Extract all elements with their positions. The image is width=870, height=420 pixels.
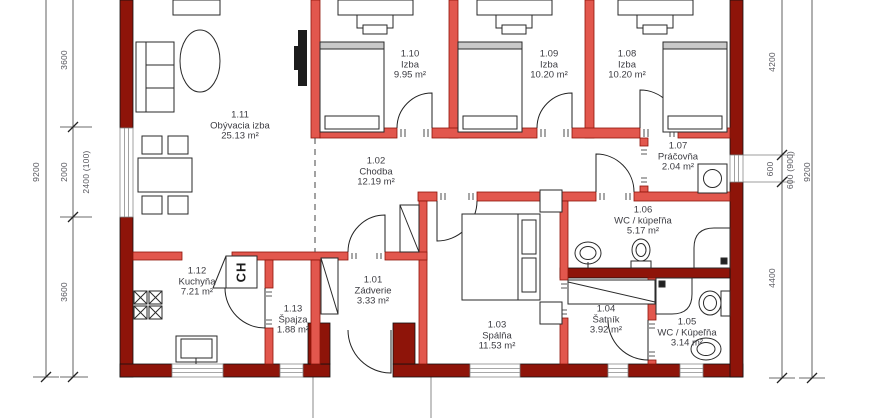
bed-room-109 (458, 42, 522, 132)
door-room-109 (537, 93, 572, 128)
room-label-1-12: 1.12Kuchyňa7.21 m² (179, 266, 216, 298)
bed-main-bedroom (462, 190, 562, 324)
room-label-1-07: 1.07Práčovňa2.04 m² (658, 141, 698, 173)
room-label-1-05: 1.05WC / Kúpeľňa3.14 m² (657, 317, 716, 349)
floor-plan: 1.11Obývacia izba25.13 m² 1.10Izba9.95 m… (0, 0, 870, 420)
fridge-label: CH (234, 262, 249, 283)
entry-closet (321, 258, 338, 314)
window-kitchen (172, 364, 223, 377)
room-label-1-13: 1.13Špajza1.88 m² (277, 304, 309, 336)
window-living-left (120, 128, 133, 217)
dim-left-mid-alt: 2400 (100) (81, 150, 91, 193)
dim-right-top: 4200 (767, 52, 777, 72)
bed-room-110 (320, 42, 384, 132)
room-label-1-06: 1.06WC / kúpeľňa5.17 m² (614, 205, 672, 237)
dim-right-bottom: 4400 (767, 268, 777, 288)
door-kitchen-pantry (225, 288, 265, 328)
door-main-entrance (348, 330, 391, 373)
room-label-1-09: 1.09Izba10.20 m² (530, 49, 568, 81)
shower-105 (656, 278, 692, 314)
desk-room-109 (477, 0, 552, 34)
room-label-1-03: 1.03Spálňa11.53 m² (479, 320, 516, 352)
dim-right-window: 600 (765, 162, 775, 177)
door-bathroom-106 (596, 154, 634, 192)
toilet-105 (699, 291, 730, 316)
dim-left-mid: 2000 (59, 162, 69, 182)
dim-left-top: 3600 (59, 50, 69, 70)
desk-room-110 (338, 0, 413, 34)
dim-right-total: 9200 (802, 162, 812, 182)
window-bedroom-main (470, 364, 520, 377)
walkin-wardrobe (568, 280, 655, 304)
desk-room-108 (618, 0, 693, 34)
nightstand (540, 190, 562, 212)
window-laundry (730, 155, 743, 182)
room-label-1-04: 1.04Šatník3.92 m² (590, 304, 622, 336)
kitchen-sink (176, 336, 217, 364)
dining-set (138, 136, 192, 214)
window-bath-small (680, 364, 703, 377)
sofa (136, 42, 174, 112)
dim-right-window-alt: 600 (900) (785, 151, 795, 189)
door-room-110 (397, 93, 432, 128)
stove-icon (134, 291, 162, 319)
hall-wardrobe (400, 205, 419, 252)
living-room-furniture (136, 0, 307, 214)
room-label-1-08: 1.08Izba10.20 m² (608, 49, 646, 81)
window-closet (608, 364, 628, 377)
room-label-1-11: 1.11Obývacia izba25.13 m² (210, 110, 270, 142)
coffee-table (180, 30, 220, 92)
floor-plan-svg (0, 0, 870, 420)
tv-icon (294, 30, 307, 86)
shower-106 (694, 228, 730, 268)
window-pantry (280, 364, 303, 377)
bed-room-108 (663, 42, 727, 132)
door-entry-hall (348, 215, 385, 252)
room-label-1-10: 1.10Izba9.95 m² (394, 49, 426, 81)
dim-left-total: 9200 (31, 162, 41, 182)
washing-machine-icon (698, 164, 727, 193)
armchair (173, 0, 220, 15)
room-label-1-01: 1.01Zádverie3.33 m² (355, 275, 392, 307)
sink-106 (575, 242, 601, 268)
nightstand (540, 302, 562, 324)
room-label-1-02: 1.02Chodba12.19 m² (357, 156, 395, 188)
dim-left-bottom: 3600 (59, 282, 69, 302)
toilet-106 (631, 239, 651, 268)
